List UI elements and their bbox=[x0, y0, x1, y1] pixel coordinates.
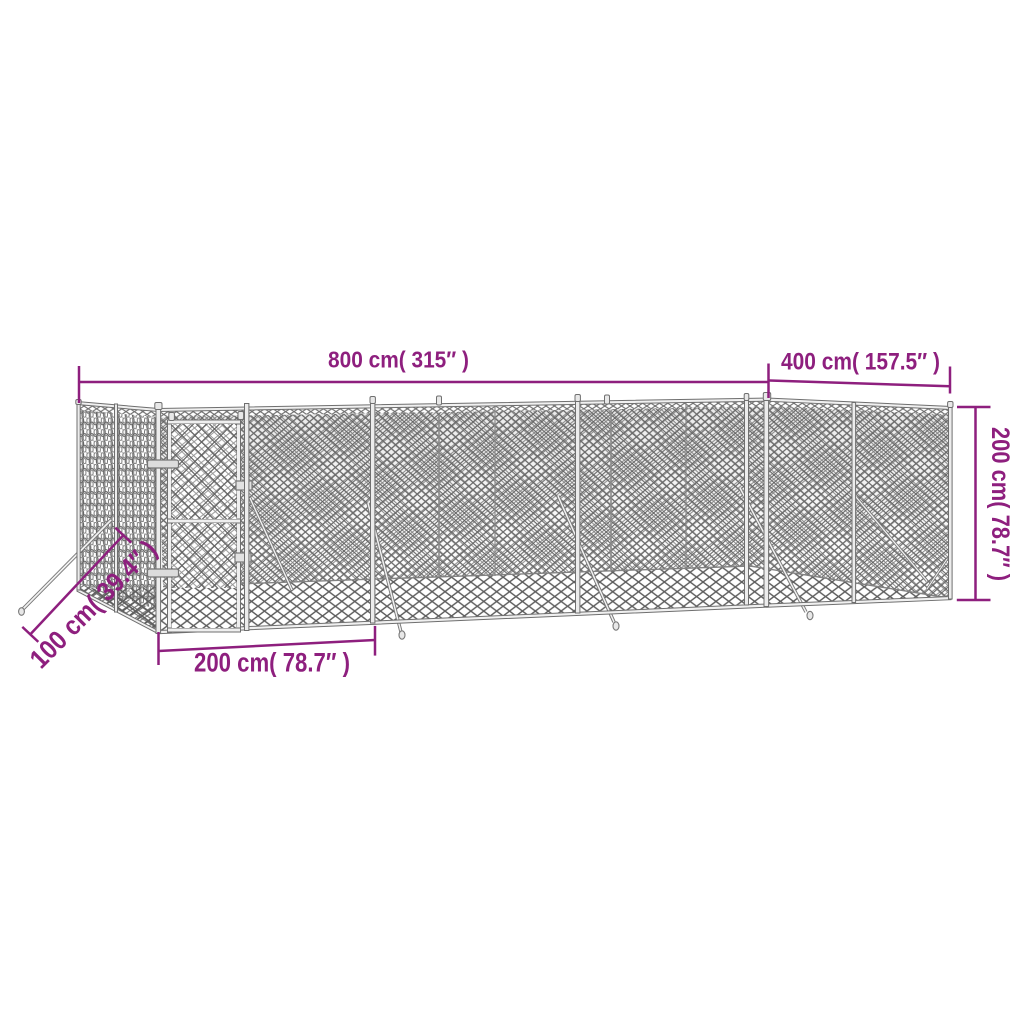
svg-text:800 cm( 315″ ): 800 cm( 315″ ) bbox=[328, 347, 469, 373]
svg-text:400 cm( 157.5″ ): 400 cm( 157.5″ ) bbox=[781, 349, 940, 376]
svg-text:200 cm( 78.7″ ): 200 cm( 78.7″ ) bbox=[986, 427, 1014, 581]
svg-text:200 cm( 78.7″ ): 200 cm( 78.7″ ) bbox=[194, 648, 350, 678]
